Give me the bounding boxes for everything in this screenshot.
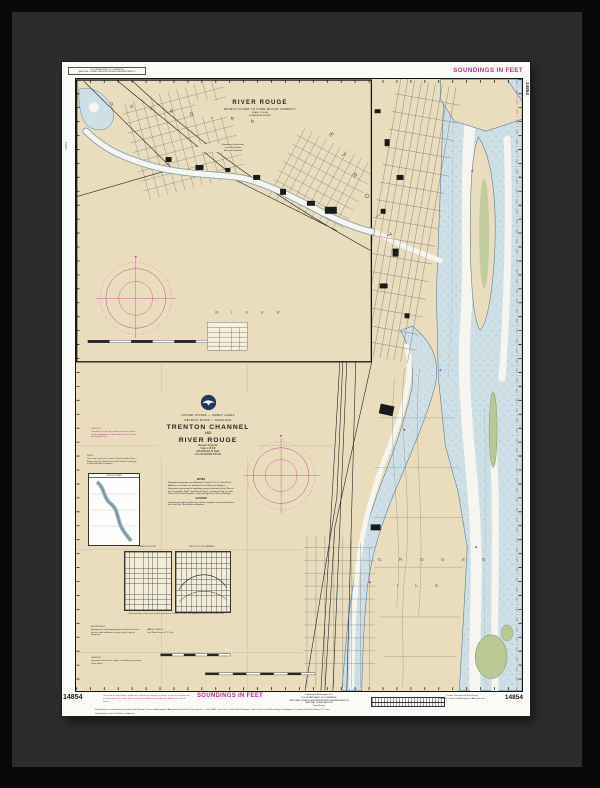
inset-scale: SCALE 1:15,000 bbox=[195, 112, 325, 114]
noaa-logo-icon bbox=[200, 394, 217, 411]
marsh-strip bbox=[489, 392, 497, 468]
label-grosse: G R O S S E bbox=[378, 557, 494, 563]
publisher-imprint: Published at Washington, D.C. U.S. DEPAR… bbox=[271, 694, 367, 708]
index-map-graphic bbox=[89, 478, 139, 542]
inset-title-block: RIVER ROUGE DETROIT RIVER TO FORD MOTOR … bbox=[195, 100, 325, 117]
shoaling-caution-note: CAUTION Improved channels are subject to… bbox=[91, 657, 143, 665]
inset-bar-scale bbox=[88, 340, 217, 342]
water-levels-note: WATER LEVELS Low Water Datum 571.7 feet. bbox=[147, 629, 181, 635]
title-datum2: AT LOW WATER DATUM bbox=[157, 454, 259, 456]
chart-number-left-margin: 14854 bbox=[64, 142, 68, 150]
current-velocity-diagram bbox=[175, 551, 231, 613]
soundings-note-top: SOUNDINGS IN FEET bbox=[370, 67, 523, 74]
chart-number-right-margin: 14854 bbox=[525, 82, 530, 95]
inset-title: RIVER ROUGE bbox=[195, 100, 325, 106]
lines-of-flow-diagram bbox=[124, 551, 172, 611]
stony-island bbox=[475, 635, 507, 679]
inset-table bbox=[207, 322, 247, 350]
notes-block: NOTES Navigation regulations are publish… bbox=[168, 477, 234, 507]
caution-body: Temporary changes or defects in aids to … bbox=[168, 502, 234, 508]
notes-body: Navigation regulations are published in … bbox=[168, 482, 234, 496]
title-line1: TRENTON CHANNEL bbox=[157, 424, 259, 431]
correction-note: Corrected through Notices to Mariners. T… bbox=[103, 695, 191, 703]
inset-soundings: SOUNDINGS IN FEET bbox=[195, 115, 325, 117]
chart-number-bottom-right: 14854 bbox=[494, 694, 523, 701]
notes-heading: NOTES bbox=[168, 478, 234, 481]
title-region: UNITED STATES — GREAT LAKES bbox=[157, 413, 259, 417]
bar-scale-small bbox=[161, 654, 231, 656]
label-ile: I L E bbox=[397, 583, 447, 589]
title-projection: Mercator Projection bbox=[157, 445, 259, 447]
authorities-note: AUTHORITIES Hydrography and topography b… bbox=[91, 626, 140, 637]
coverage-note: NOTE This chart covers the Trenton Chann… bbox=[87, 455, 138, 466]
title-subregion: DETROIT RIVER — MICHIGAN bbox=[157, 418, 259, 422]
index-map: DETROIT RIVER bbox=[88, 473, 140, 546]
caution-heading: CAUTION bbox=[168, 497, 234, 500]
diagram-left-title: LINES OF FLOW bbox=[124, 546, 170, 548]
inset-note: Soundings in feet below Low Water Datum … bbox=[198, 144, 268, 152]
title-datum1: SOUNDINGS IN FEET bbox=[157, 451, 259, 453]
print-footnote: Lithographed in the United States of Ame… bbox=[95, 713, 275, 715]
inset-map: D E A R B O R N D E T R O I T R I V E R bbox=[76, 79, 397, 362]
title-scale: Scale 1:15,000 bbox=[157, 448, 259, 450]
framed-chart: D E A R B O R N D E T R O I T R I V E R bbox=[0, 0, 600, 788]
radio-caution-note: CAUTION Limitations on the use of radio … bbox=[91, 428, 137, 439]
diagram-caption: Observed lines of flow and current veloc… bbox=[124, 613, 229, 616]
inset-label-river: R I V E R bbox=[215, 309, 285, 314]
soundings-note-bottom: SOUNDINGS IN FEET bbox=[197, 693, 263, 699]
bar-scale-long bbox=[205, 673, 315, 675]
margin-chart-title: Trenton Channel and River Rouge National… bbox=[432, 695, 492, 701]
chart-number-bottom-left: 14854 bbox=[63, 694, 82, 701]
diagram-right-title: VELOCITY OF CURRENT bbox=[175, 546, 229, 548]
inset-subtitle: DETROIT RIVER TO FORD MOTOR COMPANY bbox=[195, 108, 325, 111]
agency-imprint-box: U.S. DEPARTMENT OF COMMERCE NATIONAL OCE… bbox=[68, 67, 146, 75]
title-line3: RIVER ROUGE bbox=[157, 437, 259, 444]
title-line2: AND bbox=[157, 431, 259, 435]
chart-title-block: UNITED STATES — GREAT LAKES DETROIT RIVE… bbox=[157, 393, 259, 457]
reproduction-footnote: Produced from a reproducible furnished b… bbox=[95, 709, 523, 711]
